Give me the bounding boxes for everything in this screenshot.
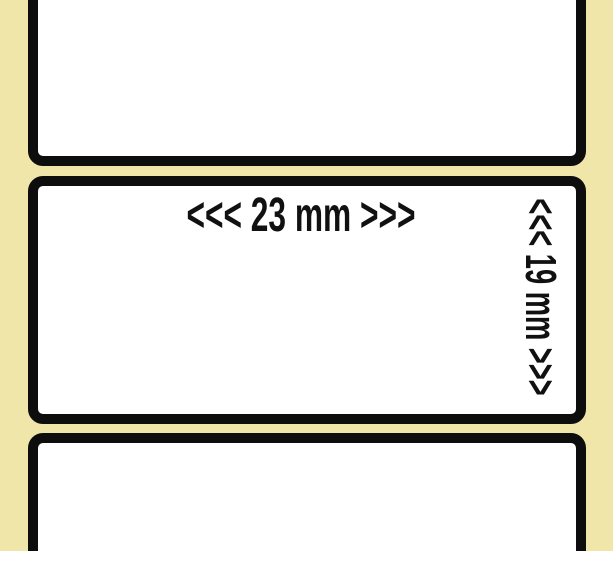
label-roll-diagram: <<< 23 mm >>> <<< 19 mm >>> — [0, 0, 613, 563]
label-top-partial — [28, 0, 586, 166]
label-width-dimension: <<< 23 mm >>> — [187, 192, 416, 240]
label-height-dimension: <<< 19 mm >>> — [518, 198, 562, 395]
liner-backing-strip: <<< 23 mm >>> <<< 19 mm >>> — [0, 0, 613, 551]
label-bottom-partial — [28, 433, 586, 551]
